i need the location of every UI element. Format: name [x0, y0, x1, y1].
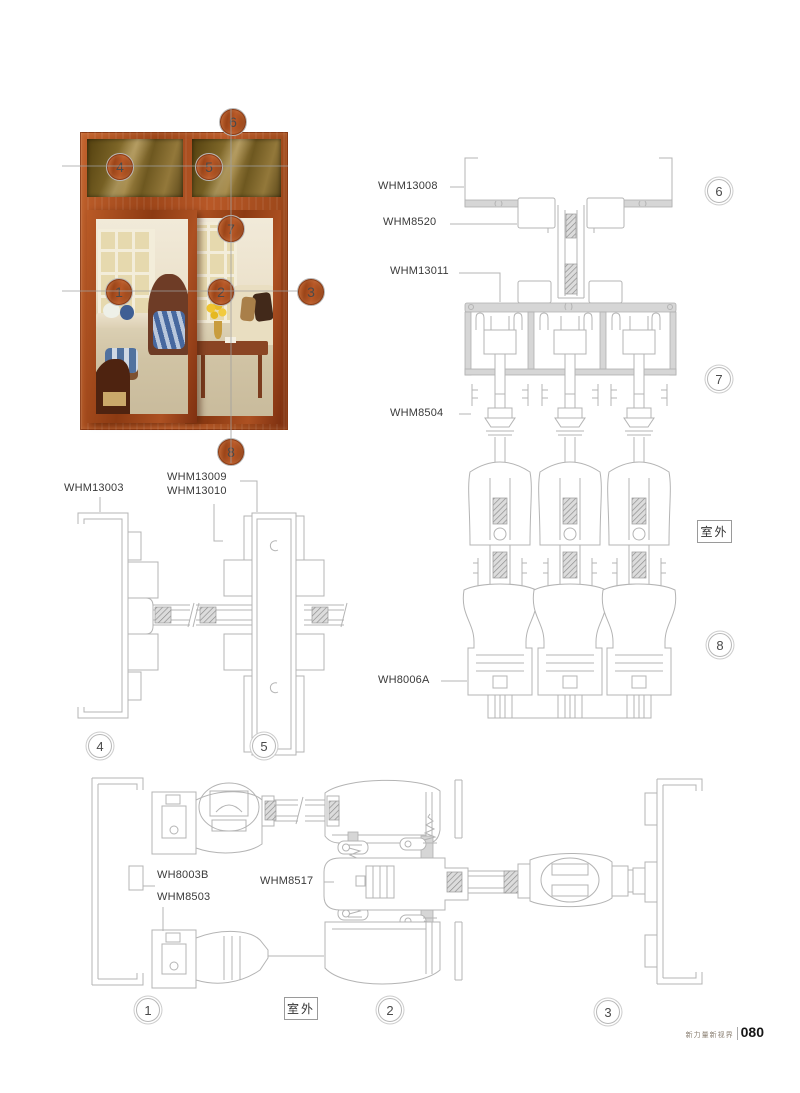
label-wh8006a: WH8006A: [378, 674, 430, 686]
callout-detail-7: 7: [707, 367, 731, 391]
callout-detail-2: 2: [378, 998, 402, 1022]
callout-photo-7: 7: [217, 215, 245, 243]
callout-detail-3: 3: [596, 1000, 620, 1024]
callout-detail-6: 6: [707, 179, 731, 203]
chair-seat: [103, 392, 126, 407]
glazing-gasket: [566, 214, 576, 238]
callout-detail-8: 8: [708, 633, 732, 657]
label-whm8517: WHM8517: [260, 875, 313, 887]
callout-detail-1: 1: [136, 998, 160, 1022]
outdoor-box-right: 室外: [697, 520, 732, 543]
leaf-left-glass: [96, 219, 188, 414]
footer-slogan: 新力量新视界: [686, 1030, 734, 1040]
callout-photo-3: 3: [297, 278, 325, 306]
callout-photo-6: 6: [219, 108, 247, 136]
label-whm13010: WHM13010: [167, 485, 227, 497]
armchair-cushion: [153, 311, 185, 349]
label-wh8003b: WH8003B: [157, 869, 209, 881]
vase: [214, 321, 222, 339]
label-whm8503: WHM8503: [157, 891, 210, 903]
sofa-pillow-tan: [240, 297, 257, 322]
detail-8-drawing: [463, 316, 675, 718]
transom-pane-left: [87, 139, 183, 197]
table-leg: [201, 355, 205, 399]
detail-6-drawing: [465, 158, 672, 298]
label-whm13008: WHM13008: [378, 180, 438, 192]
callout-photo-5: 5: [195, 153, 223, 181]
detail-4-drawing: [78, 513, 194, 718]
page-number: 080: [741, 1024, 764, 1040]
label-whm13009: WHM13009: [167, 471, 227, 483]
callout-photo-1: 1: [105, 278, 133, 306]
pillow-blue: [120, 305, 134, 321]
outdoor-box-bottom: 室外: [284, 997, 318, 1020]
detail-5-drawing: [193, 513, 347, 755]
callout-photo-8: 8: [217, 438, 245, 466]
table-book: [225, 337, 236, 343]
page-footer: 新力量新视界 080: [686, 1023, 764, 1040]
table-leg: [258, 355, 262, 399]
leaf-right-glass: [193, 218, 273, 416]
callout-photo-2: 2: [207, 278, 235, 306]
callout-photo-4: 4: [106, 153, 134, 181]
catalog-page: 6 4 5 7 1 2 3 8 6 7 8 4 5 1 2 3 WHM13008…: [0, 0, 800, 1093]
label-whm8520: WHM8520: [383, 216, 436, 228]
callout-detail-5: 5: [252, 734, 276, 758]
label-whm13003: WHM13003: [64, 482, 124, 494]
wooden-chair: [96, 359, 130, 414]
label-whm8504: WHM8504: [390, 407, 443, 419]
armchair: [148, 274, 188, 356]
footer-divider: [737, 1027, 738, 1040]
detail-2-drawing: [305, 780, 518, 984]
bottom-leader-lines: [143, 882, 334, 931]
coffee-table-top: [195, 341, 269, 355]
callout-detail-4: 4: [88, 734, 112, 758]
sliding-leaf-left: [87, 210, 197, 423]
detail-3-drawing: [518, 779, 702, 984]
label-whm13011: WHM13011: [390, 265, 449, 277]
